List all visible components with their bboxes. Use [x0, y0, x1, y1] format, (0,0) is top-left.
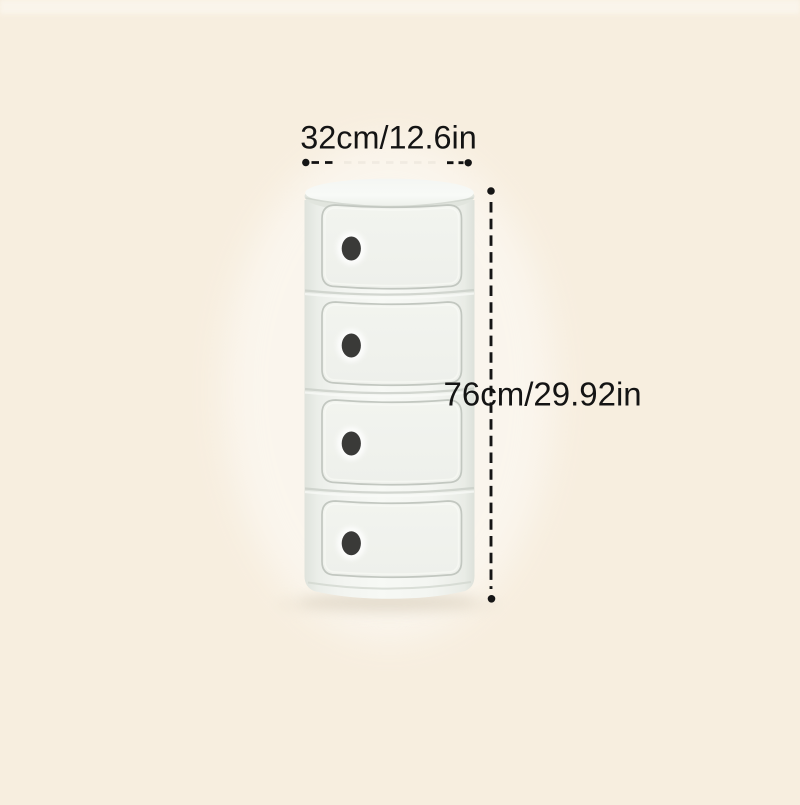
- svg-text:76cm/29.92in: 76cm/29.92in: [444, 375, 642, 412]
- svg-text:32cm/12.6in: 32cm/12.6in: [300, 119, 476, 155]
